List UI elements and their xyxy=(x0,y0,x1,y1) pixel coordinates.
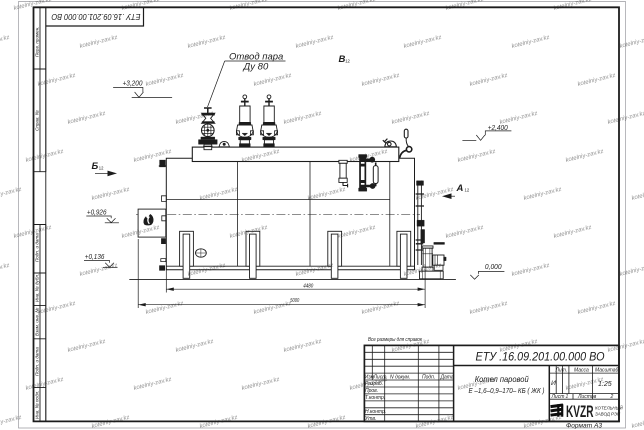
svg-text:Дата: Дата xyxy=(440,374,454,380)
svg-text:+0,136: +0,136 xyxy=(85,254,105,261)
svg-text:N докум.: N докум. xyxy=(390,374,410,380)
svg-text:kotelniy-zav.kz: kotelniy-zav.kz xyxy=(25,149,64,164)
svg-text:Б: Б xyxy=(92,161,99,172)
svg-text:2: 2 xyxy=(610,394,614,400)
svg-text:kotelniy-zav.kz: kotelniy-zav.kz xyxy=(175,339,214,354)
svg-text:Подп. и дата: Подп. и дата xyxy=(34,233,39,262)
svg-text:12: 12 xyxy=(99,166,104,171)
svg-text:Т.контр.: Т.контр. xyxy=(365,395,385,401)
svg-text:kotelniy-zav.kz: kotelniy-zav.kz xyxy=(565,149,604,164)
svg-text:KVZR: KVZR xyxy=(566,403,594,421)
svg-text:Лит.: Лит. xyxy=(555,367,568,373)
svg-text:kotelniy-zav.kz: kotelniy-zav.kz xyxy=(253,73,292,88)
svg-text:kotelniy-zav.kz: kotelniy-zav.kz xyxy=(337,225,376,240)
svg-text:kotelniy-zav.kz: kotelniy-zav.kz xyxy=(469,73,508,88)
svg-text:Справ. №: Справ. № xyxy=(34,110,39,131)
svg-text:Инв. № дубл.: Инв. № дубл. xyxy=(34,274,39,302)
svg-text:Пров.: Пров. xyxy=(365,388,378,394)
svg-text:kotelniy-zav.kz: kotelniy-zav.kz xyxy=(523,187,562,202)
svg-text:kotelniy-zav.kz: kotelniy-zav.kz xyxy=(145,73,184,88)
svg-text:+3,200: +3,200 xyxy=(123,81,143,88)
svg-text:kotelniy-zav.kz: kotelniy-zav.kz xyxy=(241,377,280,392)
svg-text:4480: 4480 xyxy=(303,283,313,289)
svg-text:Инв. № подл.: Инв. № подл. xyxy=(34,390,39,419)
svg-text:Масса: Масса xyxy=(574,367,589,373)
svg-text:kotelniy-zav.kz: kotelniy-zav.kz xyxy=(67,111,106,126)
svg-text:Подп.: Подп. xyxy=(422,374,435,380)
svg-text:kotelniy-zav.kz: kotelniy-zav.kz xyxy=(0,35,10,50)
svg-text:kotelniy-zav.kz: kotelniy-zav.kz xyxy=(295,263,334,278)
svg-text:0,000: 0,000 xyxy=(485,264,502,271)
svg-text:kotelniy-zav.kz: kotelniy-zav.kz xyxy=(37,301,76,316)
svg-text:ЕТУ .16.09.201.00.000 ВО: ЕТУ .16.09.201.00.000 ВО xyxy=(51,12,140,22)
svg-text:Масштаб: Масштаб xyxy=(595,367,619,373)
svg-text:Е –1,6–0,9–170– КБ ( ЖК ): Е –1,6–0,9–170– КБ ( ЖК ) xyxy=(469,386,545,395)
svg-text:kotelniy-zav.kz: kotelniy-zav.kz xyxy=(457,149,496,164)
svg-text:kotelniy-zav.kz: kotelniy-zav.kz xyxy=(511,263,550,278)
svg-text:12: 12 xyxy=(345,59,350,64)
svg-text:kotelniy-zav.kz: kotelniy-zav.kz xyxy=(499,111,538,126)
svg-text:kotelniy-zav.kz: kotelniy-zav.kz xyxy=(445,225,484,240)
svg-text:kotelniy-zav.kz: kotelniy-zav.kz xyxy=(91,187,130,202)
svg-text:kotelniy-zav.kz: kotelniy-zav.kz xyxy=(25,377,64,392)
svg-text:12: 12 xyxy=(465,188,470,193)
svg-text:kotelniy-zav.kz: kotelniy-zav.kz xyxy=(511,35,550,50)
svg-text:kotelniy-zav.kz: kotelniy-zav.kz xyxy=(415,187,454,202)
svg-text:kotelniy-zav.kz: kotelniy-zav.kz xyxy=(577,73,616,88)
svg-text:kotelniy-zav.kz: kotelniy-zav.kz xyxy=(553,225,592,240)
svg-text:Н.контр.: Н.контр. xyxy=(365,409,386,415)
svg-text:kotelniy-zav.kz: kotelniy-zav.kz xyxy=(361,301,400,316)
svg-text:Листов: Листов xyxy=(577,394,597,400)
svg-text:Лист: Лист xyxy=(551,394,565,400)
svg-text:kotelniy-zav.kz: kotelniy-zav.kz xyxy=(253,301,292,316)
svg-text:kotelniy-zav.kz: kotelniy-zav.kz xyxy=(79,35,118,50)
svg-text:kotelniy-zav.kz: kotelniy-zav.kz xyxy=(295,35,334,50)
svg-text:kotelniy-zav.kz: kotelniy-zav.kz xyxy=(631,187,644,202)
svg-text:А: А xyxy=(456,183,464,194)
svg-text:kotelniy-zav.kz: kotelniy-zav.kz xyxy=(0,263,10,278)
svg-text:Формат А3: Формат А3 xyxy=(566,423,602,430)
svg-text:Перв. примен.: Перв. примен. xyxy=(34,26,39,57)
svg-text:kotelniy-zav.kz: kotelniy-zav.kz xyxy=(187,35,226,50)
svg-text:kotelniy-zav.kz: kotelniy-zav.kz xyxy=(145,301,184,316)
svg-text:Ду 80: Ду 80 xyxy=(243,61,269,72)
svg-text:kotelniy-zav.kz: kotelniy-zav.kz xyxy=(67,339,106,354)
svg-text:kotelniy-zav.kz: kotelniy-zav.kz xyxy=(469,301,508,316)
svg-text:kotelniy-zav.kz: kotelniy-zav.kz xyxy=(79,263,118,278)
svg-text:kotelniy-zav.kz: kotelniy-zav.kz xyxy=(619,35,644,50)
svg-text:КОТЕЛЬНЫЙ: КОТЕЛЬНЫЙ xyxy=(595,406,623,411)
svg-text:+0,926: +0,926 xyxy=(87,210,107,217)
svg-text:5000: 5000 xyxy=(290,298,299,304)
svg-text:kotelniy-zav.kz: kotelniy-zav.kz xyxy=(577,301,616,316)
svg-text:kotelniy-zav.kz: kotelniy-zav.kz xyxy=(361,73,400,88)
svg-text:kotelniy-zav.kz: kotelniy-zav.kz xyxy=(403,35,442,50)
svg-text:kotelniy-zav.kz: kotelniy-zav.kz xyxy=(619,263,644,278)
svg-text:kotelniy-zav.kz: kotelniy-zav.kz xyxy=(283,111,322,126)
svg-text:kotelniy-zav.kz: kotelniy-zav.kz xyxy=(37,73,76,88)
svg-text:kotelniy-zav.kz: kotelniy-zav.kz xyxy=(0,187,22,202)
svg-text:kotelniy-zav.kz: kotelniy-zav.kz xyxy=(391,111,430,126)
svg-text:kotelniy-zav.kz: kotelniy-zav.kz xyxy=(631,415,644,430)
svg-text:ЕТУ .16.09.201.00.000 ВО: ЕТУ .16.09.201.00.000 ВО xyxy=(476,350,605,364)
svg-text:И: И xyxy=(551,380,556,387)
svg-text:kotelniy-zav.kz: kotelniy-zav.kz xyxy=(283,339,322,354)
svg-text:kotelniy-zav.kz: kotelniy-zav.kz xyxy=(133,377,172,392)
svg-text:Утв.: Утв. xyxy=(365,416,376,422)
svg-text:ЗАВОД РЭП: ЗАВОД РЭП xyxy=(595,411,621,416)
svg-text:1: 1 xyxy=(566,394,569,400)
svg-text:Подп. и дата: Подп. и дата xyxy=(34,347,39,376)
